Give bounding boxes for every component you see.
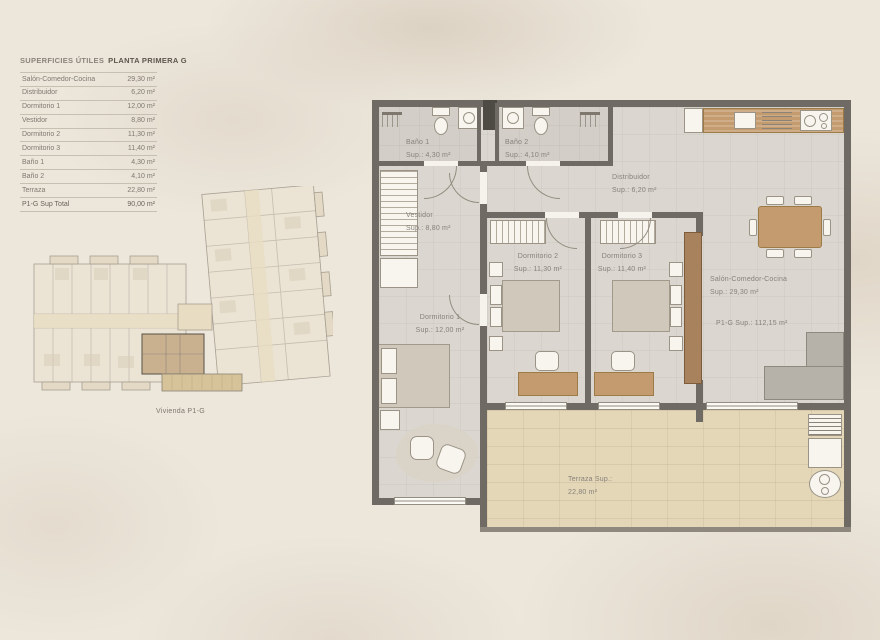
wardrobe (490, 220, 546, 244)
plan-total-label: P1-G Sup.: 112,15 m² (716, 318, 788, 331)
armchair (410, 436, 434, 460)
room-label-terraza: Terraza Sup.: 22,80 m² (568, 474, 612, 500)
wall-segment (608, 103, 613, 166)
desk (594, 372, 654, 396)
dining-chair (766, 249, 784, 258)
pillow (490, 285, 502, 305)
dining-chair (766, 196, 784, 205)
keyplan-drawing (28, 186, 333, 398)
nightstand (380, 410, 400, 430)
desk (518, 372, 578, 396)
wall-segment (696, 380, 703, 422)
room-label-vestidor: Vestidor Sup.: 8,80 m² (406, 210, 451, 236)
dining-chair (823, 219, 831, 236)
pillow (381, 348, 397, 374)
door-opening (480, 294, 487, 326)
room-label-salon: Salón-Comedor-Cocina Sup.: 29,30 m² (710, 274, 787, 300)
bed (502, 280, 560, 332)
stove-icon (800, 110, 832, 131)
room-label-dormitorio1: Dormitorio 1 Sup.: 12,00 m² (404, 312, 476, 338)
wall-segment (844, 403, 851, 532)
room-label-bano1: Baño 1 Sup.: 4,30 m² (406, 137, 451, 163)
wall-segment (585, 218, 591, 408)
pillow (381, 378, 397, 404)
pillow (490, 307, 502, 327)
keyplan: Vivienda P1-G (28, 186, 333, 415)
toilet-icon (432, 107, 450, 137)
window-dormitorio3 (598, 402, 660, 410)
dining-chair (794, 249, 812, 258)
wall-segment (495, 103, 499, 161)
shower-icon (580, 112, 600, 127)
pillow (670, 307, 682, 327)
kitchen-sink-icon (734, 112, 756, 129)
nightstand (669, 262, 683, 277)
desk-chair (535, 351, 559, 371)
toilet-icon (532, 107, 550, 137)
laundry-rack-icon (808, 414, 842, 436)
table-row: Salón-Comedor-Cocina29,30 m² (20, 72, 157, 86)
pillow (670, 285, 682, 305)
wall-segment (487, 212, 700, 218)
kitchen-cabinet (684, 108, 703, 133)
drying-rack-icon (762, 112, 792, 129)
table-title-left: SUPERFICIES ÚTILES (20, 56, 104, 65)
table-row: Dormitorio 311,40 m² (20, 141, 157, 155)
page: SUPERFICIES ÚTILESPLANTA PRIMERA G Salón… (0, 0, 880, 640)
table-title-right: PLANTA PRIMERA G (108, 56, 187, 65)
laundry-sink-icon (809, 470, 841, 498)
floor-terraza (487, 410, 844, 527)
keyplan-caption: Vivienda P1-G (28, 408, 333, 415)
nightstand (669, 336, 683, 351)
window-dormitorio2 (505, 402, 567, 410)
washbasin-icon (502, 107, 524, 129)
table-row: Dormitorio 112,00 m² (20, 100, 157, 114)
dining-chair (749, 219, 757, 236)
wall-segment (477, 103, 481, 161)
dining-table (758, 206, 822, 248)
room-label-distribuidor: Distribuidor Sup.: 6,20 m² (612, 172, 657, 198)
room-label-dormitorio2: Dormitorio 2 Sup.: 11,30 m² (500, 251, 576, 277)
table-row: Baño 24,10 m² (20, 169, 157, 183)
wall-segment (844, 100, 851, 422)
terrace-railing (480, 527, 851, 532)
room-label-dormitorio3: Dormitorio 3 Sup.: 11,40 m² (584, 251, 660, 277)
desk-chair (611, 351, 635, 371)
table-row: Distribuidor6,20 m² (20, 86, 157, 100)
door-opening (480, 172, 487, 204)
window-dormitorio1 (394, 497, 466, 505)
dining-chair (794, 196, 812, 205)
table-title: SUPERFICIES ÚTILESPLANTA PRIMERA G (20, 56, 157, 65)
bed (612, 280, 670, 332)
room-label-bano2: Baño 2 Sup.: 4,10 m² (505, 137, 550, 163)
terrace-slider-window (706, 402, 798, 410)
wall-segment (480, 403, 487, 532)
table-row: Dormitorio 211,30 m² (20, 128, 157, 142)
table-row: Baño 14,30 m² (20, 155, 157, 169)
table-row: Vestidor8,80 m² (20, 114, 157, 128)
sofa-chaise (764, 366, 844, 400)
sliding-door-panel (684, 232, 702, 384)
vestidor-cabinet (380, 258, 418, 288)
utility-cabinet (808, 438, 842, 468)
nightstand (489, 336, 503, 351)
shower-icon (382, 112, 402, 127)
